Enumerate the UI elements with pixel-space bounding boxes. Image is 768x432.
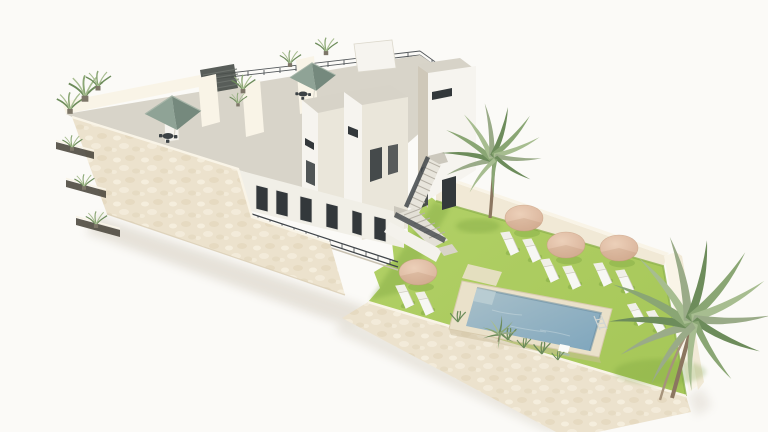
window-opening xyxy=(388,144,398,175)
roof-chimney xyxy=(354,40,396,72)
window-opening xyxy=(374,216,386,242)
window-opening xyxy=(370,147,382,182)
door-opening xyxy=(276,190,288,217)
door-opening xyxy=(442,176,456,210)
window-opening xyxy=(306,160,315,186)
window-opening xyxy=(352,210,362,236)
door-opening xyxy=(256,185,268,212)
render-stage xyxy=(0,0,768,432)
architectural-render xyxy=(0,0,768,432)
door-opening xyxy=(300,196,312,223)
door-opening xyxy=(326,203,338,230)
